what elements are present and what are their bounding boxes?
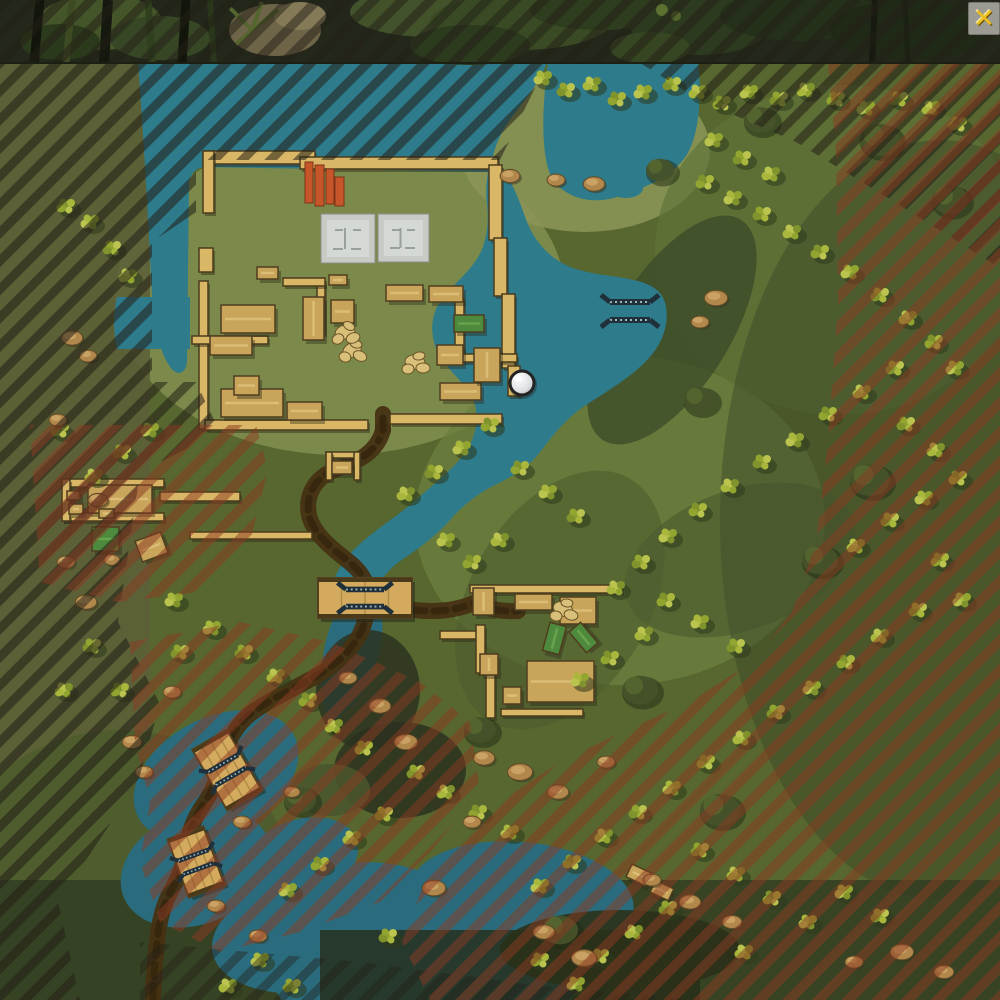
rock-highlight [693, 317, 703, 323]
tree [406, 495, 413, 502]
tree [472, 563, 479, 570]
tree [593, 77, 601, 85]
orange-container [326, 169, 334, 204]
tree [736, 647, 743, 654]
tree [668, 537, 675, 544]
sandbag-cluster [416, 363, 430, 373]
tree [724, 479, 731, 486]
tree [206, 621, 213, 628]
tree [520, 469, 527, 476]
canopy-highlight [648, 160, 662, 174]
tree [434, 473, 441, 480]
tree [645, 627, 653, 635]
tree [642, 555, 650, 563]
tree [618, 92, 626, 100]
tree [643, 93, 650, 100]
tree [389, 929, 397, 937]
tree [736, 151, 743, 158]
tree [734, 191, 742, 199]
tree [174, 601, 181, 608]
rock-highlight [476, 752, 488, 759]
tree [814, 245, 821, 252]
tree [795, 441, 802, 448]
compound-wall [326, 452, 332, 480]
tree [644, 635, 651, 642]
control-point-marker [509, 371, 537, 399]
tree [637, 85, 644, 92]
tree [700, 623, 707, 630]
tree [792, 233, 799, 240]
tree [638, 627, 645, 634]
tree [440, 533, 447, 540]
tree [789, 433, 796, 440]
tree [549, 485, 557, 493]
rock-highlight [708, 292, 721, 300]
jungle-strip [0, 0, 1000, 65]
tree [756, 455, 763, 462]
orange-container [335, 177, 344, 206]
tree [698, 511, 705, 518]
tree [796, 433, 804, 441]
orange-container [305, 162, 313, 203]
tree [610, 581, 617, 588]
compound-wall [440, 631, 478, 639]
compound-wall [203, 151, 214, 213]
tree [666, 601, 673, 608]
tree [772, 167, 780, 175]
game-screen: ✕ [0, 0, 1000, 1000]
tree [435, 465, 443, 473]
tree [730, 639, 737, 646]
tree [472, 805, 479, 812]
tree [494, 533, 501, 540]
tree [428, 465, 435, 472]
tree [484, 418, 491, 425]
tree [500, 541, 507, 548]
tree [660, 593, 667, 600]
bridge-rail [318, 578, 412, 582]
tree [400, 487, 407, 494]
tree [771, 175, 778, 182]
tree [763, 455, 771, 463]
tree [708, 133, 715, 140]
tree [667, 593, 675, 601]
strip-shadow-stripes [0, 0, 1000, 63]
sandbag-cluster [402, 364, 415, 375]
tree [611, 92, 618, 99]
rock-highlight [586, 178, 598, 185]
tree [580, 681, 587, 688]
headland-pond [609, 178, 643, 198]
tree [701, 615, 709, 623]
tree [574, 673, 581, 680]
compound-wall [494, 238, 507, 296]
tree [616, 589, 623, 596]
tree [699, 175, 706, 182]
tree [611, 651, 619, 659]
tree [577, 509, 585, 517]
tree [491, 418, 499, 426]
tree [699, 503, 707, 511]
concrete-pad-inner [384, 220, 423, 256]
tree [544, 71, 552, 79]
tree [617, 581, 625, 589]
tree [388, 937, 395, 944]
tree [548, 493, 555, 500]
tree [463, 441, 471, 449]
tree [447, 533, 455, 541]
tree [730, 487, 737, 494]
compound-wall [501, 709, 583, 716]
tree [604, 651, 611, 658]
tree [742, 159, 749, 166]
tree [560, 83, 567, 90]
compound-wall [283, 278, 325, 286]
tree [570, 509, 577, 516]
tree [731, 479, 739, 487]
tree [456, 441, 463, 448]
control-point-ball [510, 371, 534, 395]
tree [641, 563, 648, 570]
tree [763, 207, 771, 215]
tree [727, 191, 734, 198]
tree [692, 503, 699, 510]
tree [635, 555, 642, 562]
tree [793, 225, 801, 233]
control-point-glint [515, 376, 521, 382]
compound-wall [199, 248, 213, 272]
tree [644, 85, 652, 93]
bridge-rail [318, 614, 412, 618]
tree [542, 485, 549, 492]
tree [462, 449, 469, 456]
tree [473, 555, 481, 563]
tree [479, 805, 487, 813]
tree [669, 529, 677, 537]
tree [694, 615, 701, 622]
tree [762, 215, 769, 222]
tree [765, 167, 772, 174]
tree [743, 151, 751, 159]
tree [566, 91, 573, 98]
tree [407, 487, 415, 495]
tree [521, 461, 529, 469]
tree [756, 207, 763, 214]
tree [501, 533, 509, 541]
bridge [318, 578, 415, 622]
tree [576, 517, 583, 524]
canopy-highlight [687, 388, 703, 404]
concrete-pad-inner [327, 220, 369, 257]
tree [592, 85, 599, 92]
tree [706, 175, 714, 183]
rock-highlight [549, 175, 559, 181]
tree [466, 555, 473, 562]
tree [821, 245, 829, 253]
rock-highlight [503, 171, 514, 178]
rock-highlight [511, 766, 525, 774]
tree [586, 77, 593, 84]
tree [705, 183, 712, 190]
tree [733, 199, 740, 206]
tree [762, 463, 769, 470]
tree [820, 253, 827, 260]
tree [543, 79, 550, 86]
tree [567, 83, 575, 91]
tree [382, 929, 389, 936]
tree [581, 673, 589, 681]
tree [822, 407, 829, 414]
close-icon: ✕ [973, 6, 995, 32]
canopy-highlight [625, 677, 643, 695]
tree [714, 141, 721, 148]
tree [786, 225, 793, 232]
map-view [0, 0, 1000, 1000]
tree [610, 659, 617, 666]
tree [715, 133, 723, 141]
tree [514, 461, 521, 468]
orange-container [315, 165, 324, 206]
tree [662, 529, 669, 536]
tree [490, 426, 497, 433]
rock-highlight [465, 817, 475, 823]
tree [446, 541, 453, 548]
close-button[interactable]: ✕ [968, 2, 1000, 35]
tree [737, 639, 745, 647]
tree [617, 100, 624, 107]
